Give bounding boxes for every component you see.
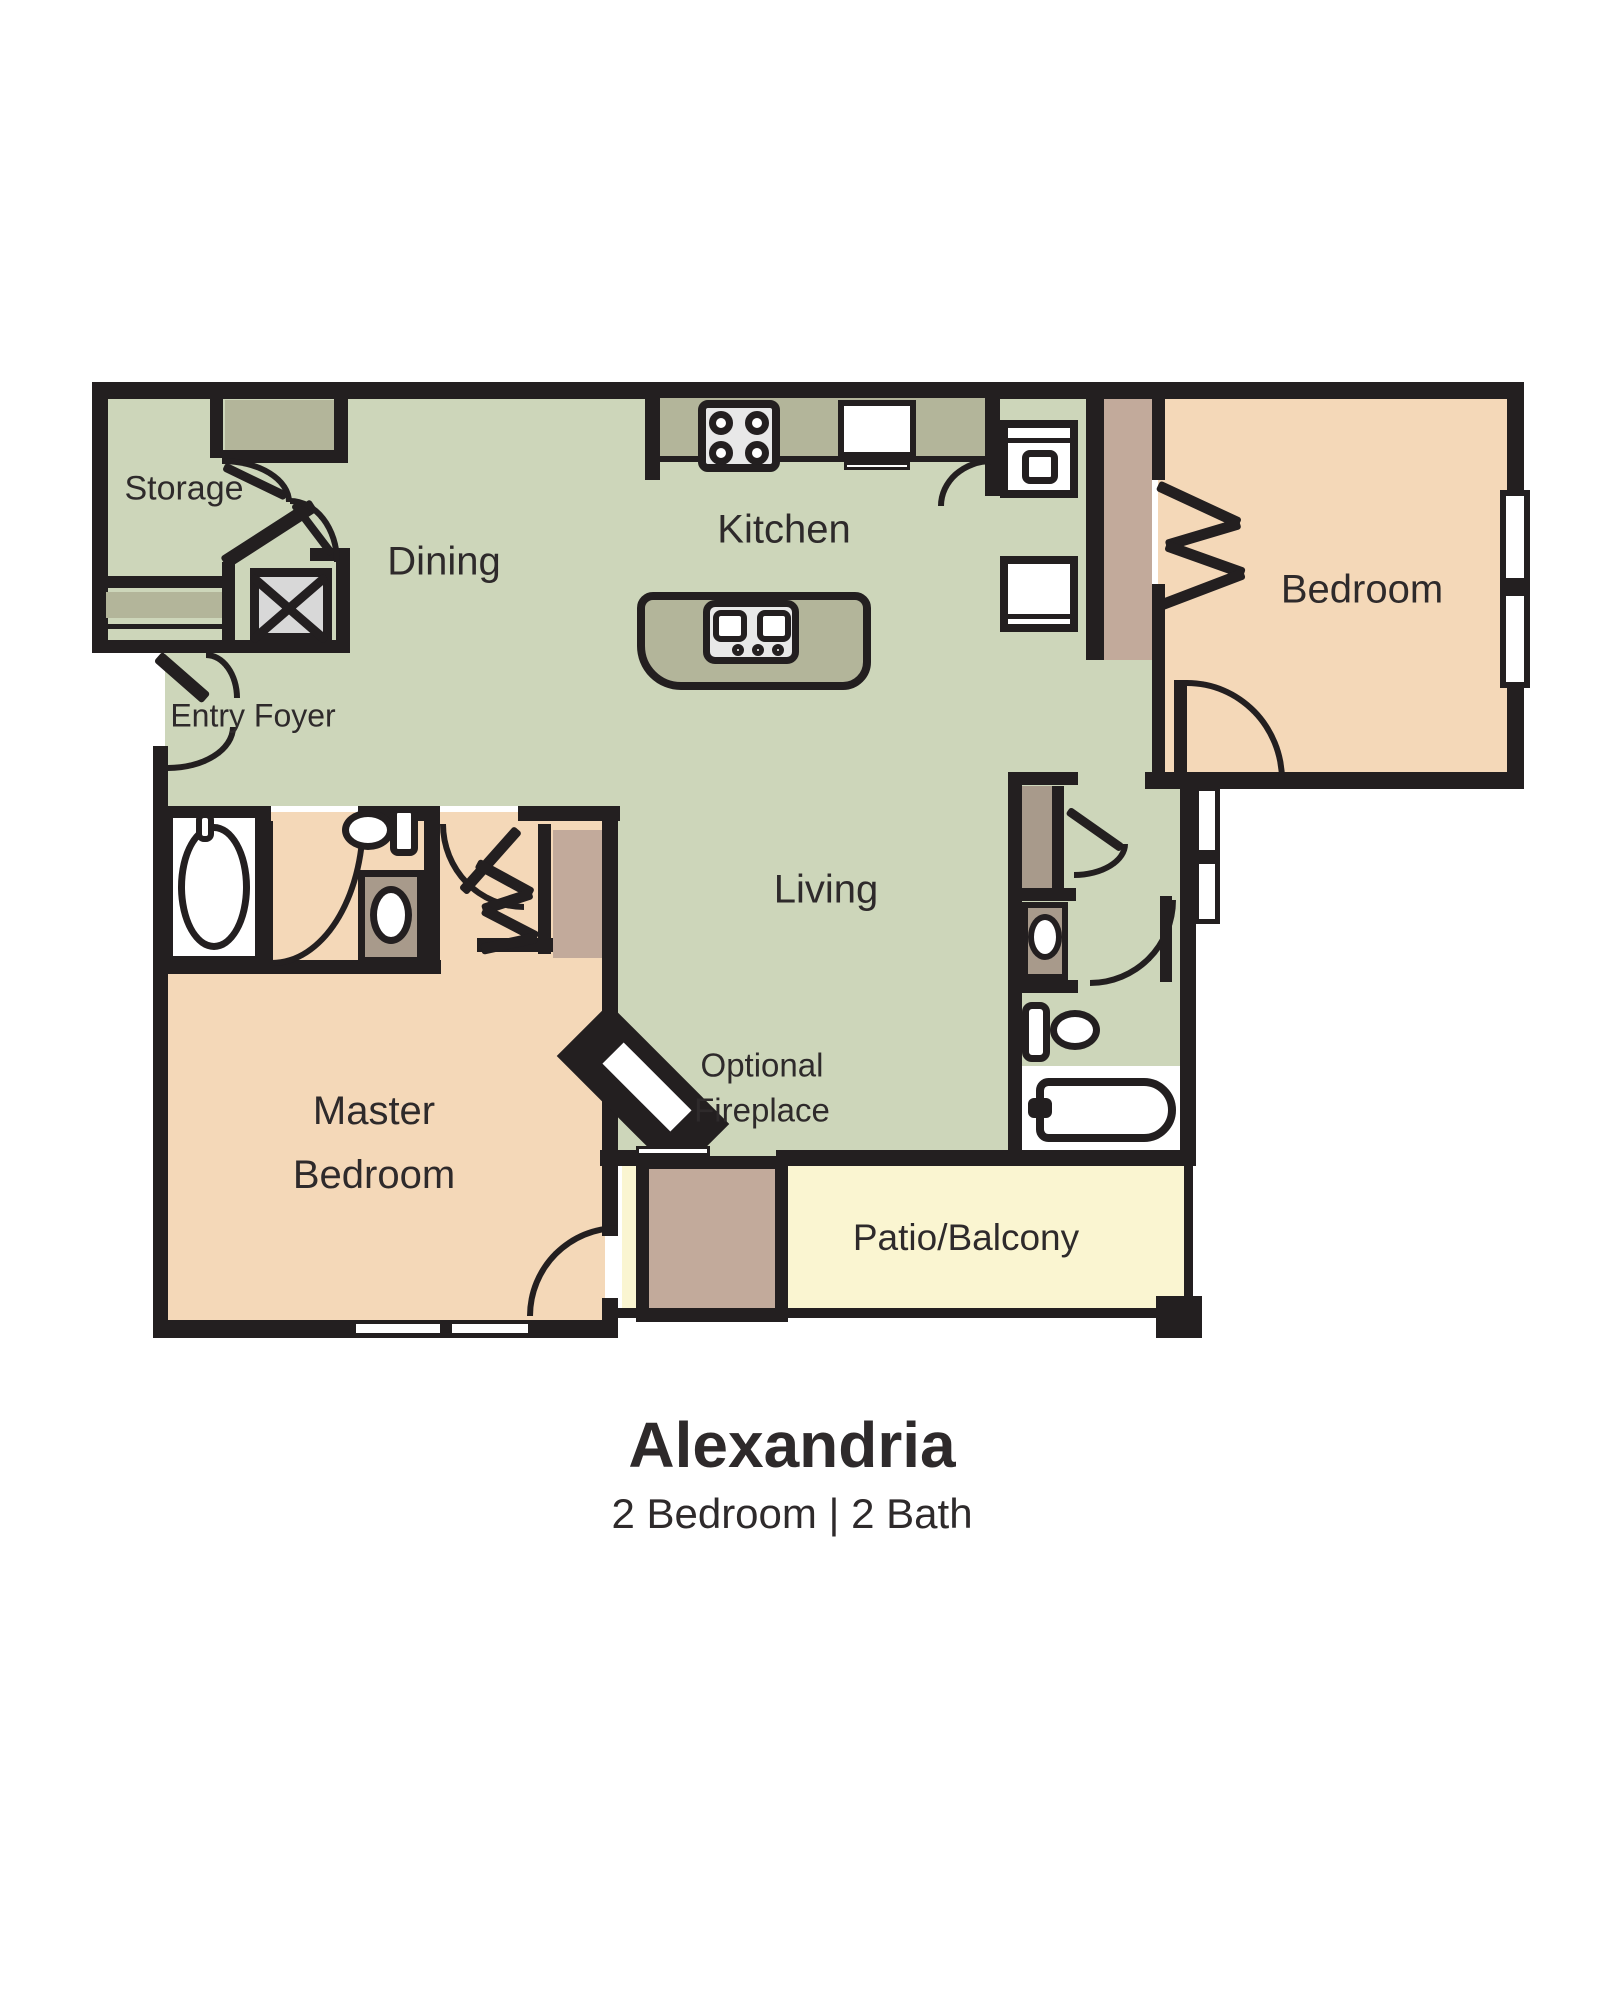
island-faucet-dot-1 xyxy=(732,644,744,656)
bedroom-left-wall-bottom-stub xyxy=(1152,584,1165,774)
master-window-pane-1 xyxy=(356,1324,440,1333)
dryer-lid-line xyxy=(1008,614,1070,619)
living-label: Living xyxy=(774,868,879,913)
master-bedroom-label-line1: Master xyxy=(293,1079,455,1143)
bath2-linen-right-wall xyxy=(1052,786,1064,890)
master-window-pane-2 xyxy=(452,1324,528,1333)
patio-balcony-label: Patio/Balcony xyxy=(853,1217,1079,1259)
bedroom-label: Bedroom xyxy=(1281,568,1443,613)
stove-icon xyxy=(698,400,780,472)
bath1-toilet-bowl xyxy=(342,810,394,850)
living-bottom-wall-right xyxy=(776,1150,1196,1166)
laundry-column-left-wall xyxy=(1086,398,1104,660)
plan-title: Alexandria xyxy=(628,1408,955,1482)
bath2-top-stub-wall xyxy=(1008,772,1078,785)
optional-fireplace-label-line2: Fireplace xyxy=(694,1088,830,1133)
bath2-compartment-door-leaf xyxy=(1160,896,1172,982)
patio-right-wall xyxy=(1184,1164,1193,1314)
patio-corner-post xyxy=(1156,1296,1202,1338)
dining-label: Dining xyxy=(387,540,500,585)
bedroom-left-wall-top-stub xyxy=(1152,398,1165,480)
bath2-toilet-bowl xyxy=(1050,1010,1100,1050)
patio-bottom-wall xyxy=(616,1308,1194,1318)
garden-tub-faucet xyxy=(196,812,214,842)
optional-fireplace-label-line1: Optional xyxy=(694,1043,830,1088)
top-exterior-wall xyxy=(92,382,1524,399)
optional-fireplace-label: Optional Fireplace xyxy=(694,1043,830,1132)
bathtub-faucet xyxy=(1028,1098,1052,1118)
entry-foyer-label: Entry Foyer xyxy=(170,698,335,735)
bath1-sink-icon xyxy=(370,886,412,944)
stove-burner-1 xyxy=(709,411,733,435)
bath2-toilet-tank xyxy=(1022,1002,1050,1062)
storage-right-wall xyxy=(210,398,223,458)
plan-subtitle: 2 Bedroom | 2 Bath xyxy=(611,1490,972,1538)
island-sink-basin-right xyxy=(757,610,791,642)
bath2-linen-bottom-wall xyxy=(1020,888,1076,901)
shelf-closet-bottom-wall xyxy=(92,640,234,653)
bathtub-icon xyxy=(1036,1078,1176,1142)
patio-slider-pane-1 xyxy=(636,1146,710,1156)
kitchen-left-stub-wall xyxy=(645,390,660,480)
floor-plan-canvas: Storage Dining Kitchen Bedroom Entry Foy… xyxy=(0,0,1600,2000)
kitchen-label: Kitchen xyxy=(717,508,850,553)
bath2-linen-closet xyxy=(1022,786,1054,888)
closet-mid-wall xyxy=(538,824,551,954)
bath2-vanity-bottom-wall xyxy=(1020,980,1078,993)
master-bedroom-label: Master Bedroom xyxy=(293,1079,455,1207)
master-bedroom-label-line2: Bedroom xyxy=(293,1143,455,1207)
bedroom-window-mullion xyxy=(1504,578,1528,596)
bath1-right-wall xyxy=(424,806,440,974)
living-bottom-wall-left xyxy=(600,1150,638,1166)
shelf-closet-top-wall xyxy=(92,576,234,588)
living-window-mullion xyxy=(1196,850,1218,864)
shelf-closet-rod xyxy=(106,624,224,629)
dryer-icon xyxy=(1000,556,1078,632)
washer-lid-line xyxy=(1008,438,1070,443)
bath2-left-wall xyxy=(1008,772,1022,1162)
stove-burner-2 xyxy=(745,411,769,435)
bath1-toilet-tank xyxy=(390,806,418,856)
bath2-sink-icon xyxy=(1028,914,1062,960)
kitchen-counter-sink-icon xyxy=(838,400,916,458)
bedroom-door-leaf xyxy=(1174,680,1187,774)
master-closet-fill xyxy=(553,830,609,958)
stove-burner-4 xyxy=(745,441,769,465)
shelf-closet-shelf xyxy=(106,592,224,618)
garden-tub-icon xyxy=(178,824,250,950)
island-sink-basin-left xyxy=(713,610,747,642)
coat-closet-right-wall xyxy=(334,398,348,463)
stove-burner-3 xyxy=(709,441,733,465)
coat-closet-shelf xyxy=(225,400,335,452)
kitchen-counter-sink-front xyxy=(844,462,910,470)
bedroom-closet-chase-fill xyxy=(1104,398,1152,660)
island-faucet-dot-3 xyxy=(772,644,784,656)
island-faucet-dot-2 xyxy=(752,644,764,656)
patio-storage-closet xyxy=(636,1156,788,1322)
laundry-right-wall xyxy=(336,558,350,653)
washer-door-inner xyxy=(1022,450,1058,484)
storage-label: Storage xyxy=(124,470,243,509)
